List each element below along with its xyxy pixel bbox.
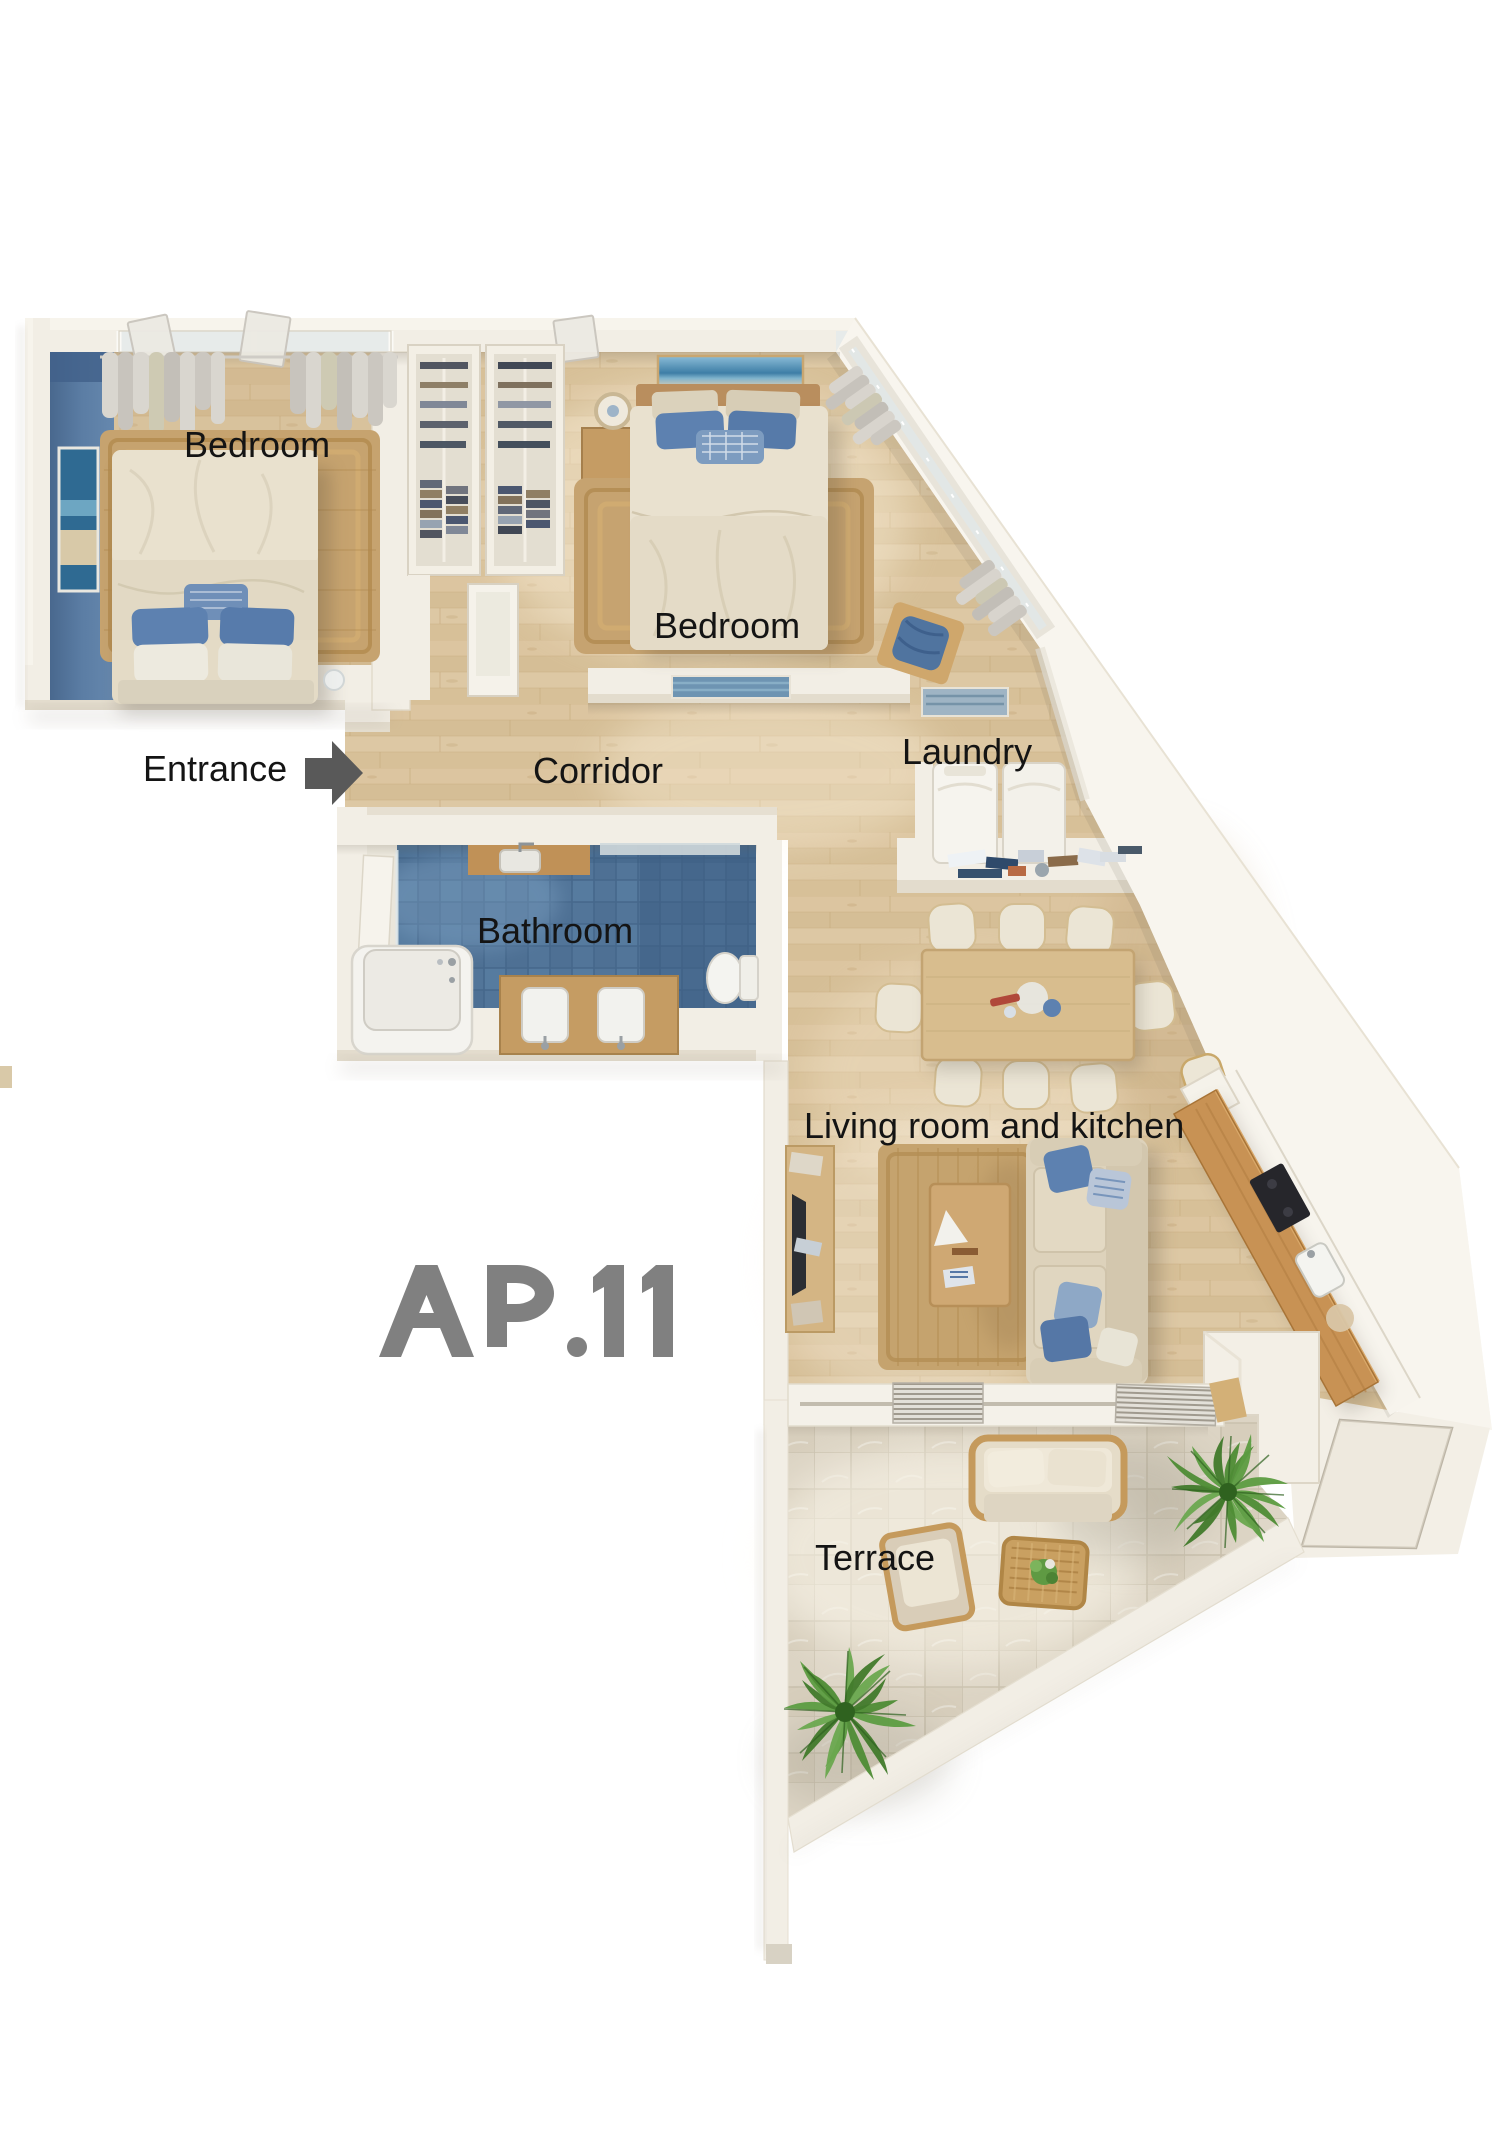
svg-text:Terrace: Terrace (815, 1537, 935, 1578)
svg-text:Corridor: Corridor (533, 750, 663, 791)
svg-text:Bedroom: Bedroom (654, 605, 800, 646)
svg-text:Laundry: Laundry (902, 731, 1032, 772)
svg-text:Bathroom: Bathroom (477, 910, 633, 951)
svg-text:Living room and kitchen: Living room and kitchen (804, 1105, 1184, 1146)
svg-text:Bedroom: Bedroom (184, 424, 330, 465)
svg-text:Entrance: Entrance (143, 748, 287, 789)
